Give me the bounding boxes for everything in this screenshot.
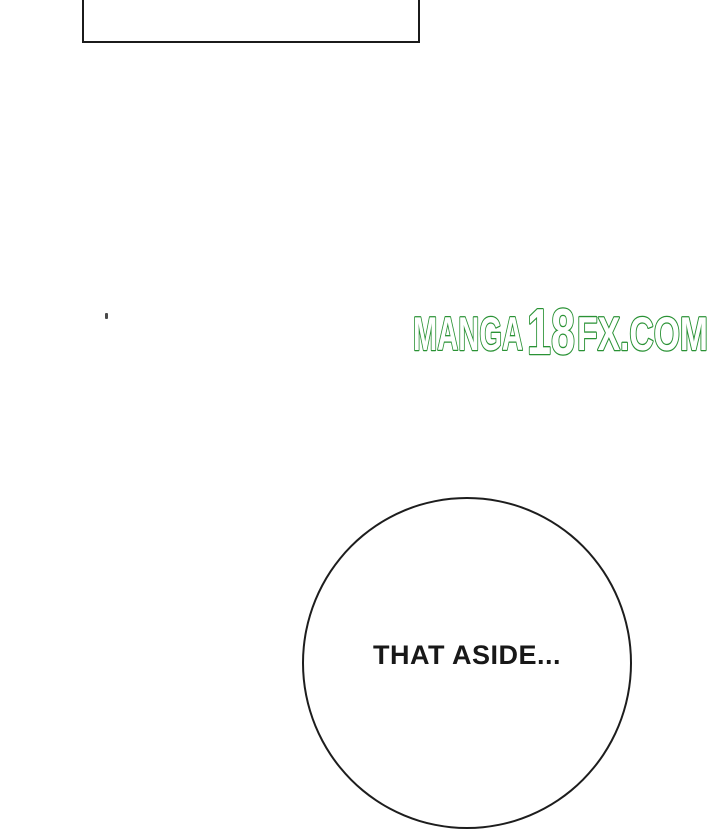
manga-page: MANGA 18 FX.COM THAT ASIDE... (0, 0, 720, 700)
site-watermark: MANGA 18 FX.COM (410, 301, 712, 357)
ink-speck (105, 313, 108, 319)
panel-border-box (82, 0, 420, 43)
watermark-text-18: 18 (527, 301, 575, 357)
speech-bubble: THAT ASIDE... (302, 497, 632, 829)
watermark-text-fxcom: FX.COM (577, 307, 708, 357)
speech-bubble-text: THAT ASIDE... (304, 640, 630, 671)
watermark-text-manga: MANGA (413, 307, 523, 357)
